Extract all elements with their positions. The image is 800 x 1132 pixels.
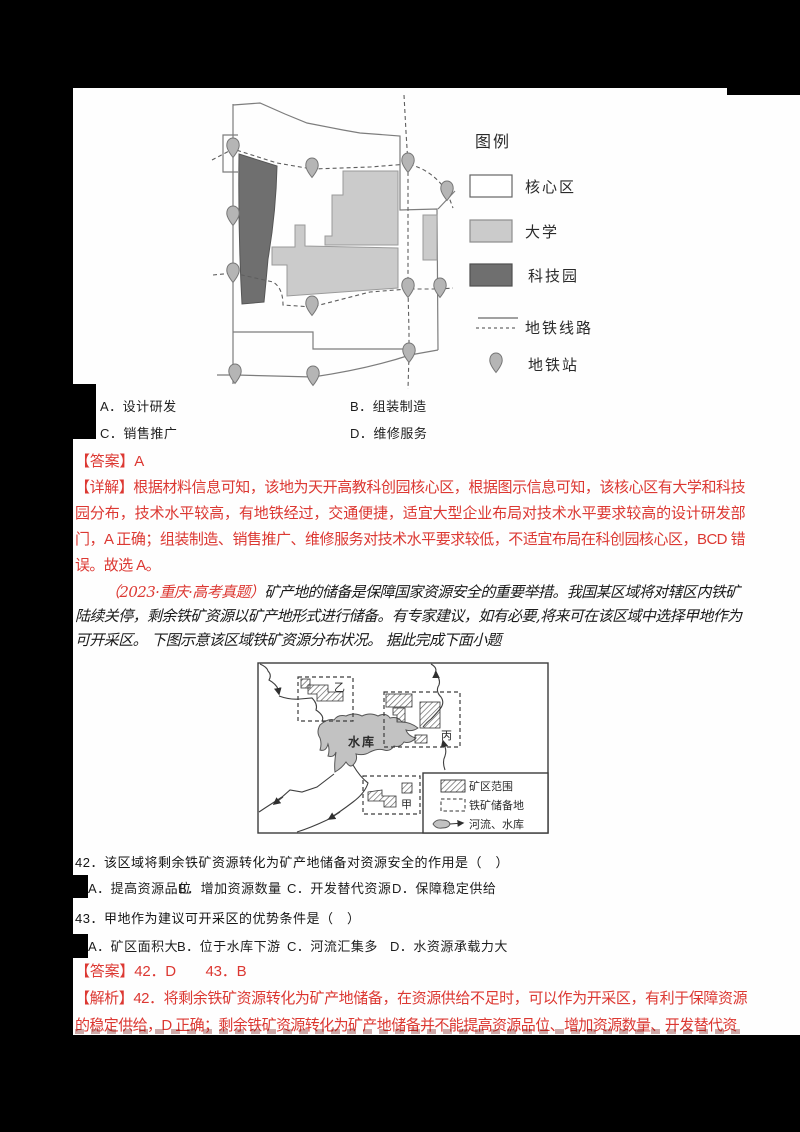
q41-options-row1: A．设计研发 B．组装制造 [73,396,743,416]
q42-option-b: B．增加资源数量 [178,878,282,897]
legend-core-label: 核心区 [525,178,576,196]
ore-reserve-map: 水库 乙 丙 甲 矿区范围 铁矿储备地 河流、水库 [250,658,555,838]
university-swatch [470,220,512,242]
legend-subway-line-label: 地铁线路 [525,319,593,337]
q43-text: 43．甲地作为建议可开采区的优势条件是（ ） [75,908,360,927]
university-area-north [325,171,398,245]
q42-43-analysis: 【解析】42．将剩余铁矿资源转化为矿产地储备，在资源供给不足时，可以作为开采区，… [75,985,747,1035]
q41-option-b: B．组装制造 [350,396,427,415]
redaction-bar-q43 [73,934,88,958]
campus-map: 图例 核心区 大学 科技园 地铁线路 地铁站 [200,92,640,392]
q42-text: 42．该区域将剩余铁矿资源转化为矿产地储备对资源安全的作用是（ ） [75,852,509,871]
legend-station-icon [490,353,502,373]
map2-legend: 矿区范围 铁矿储备地 河流、水库 [423,773,548,833]
q42-options-row: A．提高资源品位 B．增加资源数量 C．开发替代资源 D．保障稳定供给 [73,878,753,898]
q41-answer: 【答案】A [75,450,144,471]
legend-mining-label: 矿区范围 [469,779,513,793]
q42-option-c: C．开发替代资源 [287,878,391,897]
area-yi-label: 乙 [334,681,345,694]
mine-bing-4 [415,735,427,743]
legend-techpark-label: 科技园 [528,267,579,285]
techpark-swatch [470,264,512,286]
q43-option-b: B．位于水库下游 [177,936,281,955]
mine-bing-1 [386,694,412,707]
passage-paragraph: （2023·重庆·高考真题）矿产地的储备是保障国家资源安全的重要举措。我国某区域… [75,580,745,652]
redaction-bar-q42 [73,875,88,898]
legend-river-label: 河流、水库 [469,817,524,831]
q43-option-d: D．水资源承载力大 [390,936,508,955]
q41-option-c: C．销售推广 [100,423,177,442]
passage-source: （2023·重庆·高考真题） [105,583,264,601]
legend-reserve-label: 铁矿储备地 [469,798,524,812]
document-page: 图例 核心区 大学 科技园 地铁线路 地铁站 A．设计研发 B．组装制造 C．销… [73,88,800,1035]
q41-explanation: 【详解】根据材料信息可知，该地为天开高教科创园核心区，根据图示信息可知，该核心区… [75,475,745,579]
map1-legend: 图例 核心区 大学 科技园 地铁线路 地铁站 [470,132,593,374]
core-area-swatch [470,175,512,197]
q43-option-a: A．矿区面积大 [88,936,178,955]
legend-river-blob-icon [433,820,450,828]
reservoir-label: 水库 [348,734,376,749]
q41-options-row2: C．销售推广 D．维修服务 [73,423,743,443]
university-area-east [423,215,437,260]
mine-jia-1 [402,783,412,793]
mine-bing-3 [420,702,440,728]
q42-option-d: D．保障稳定供给 [392,878,496,897]
cut-off-text-strip [75,1029,745,1034]
q43-options-row: A．矿区面积大 B．位于水库下游 C．河流汇集多 D．水资源承载力大 [73,936,753,956]
q43-option-c: C．河流汇集多 [287,936,378,955]
area-jia-label: 甲 [401,798,412,811]
area-bing-label: 丙 [441,729,452,742]
q41-option-d: D．维修服务 [350,423,427,442]
legend-title: 图例 [475,132,511,151]
boundary-inner-step [233,332,410,349]
legend-subway-station-label: 地铁站 [528,356,579,374]
q42-option-a: A．提高资源品位 [88,878,192,897]
photo-crop-notch [727,88,800,95]
redaction-bar-q41 [73,384,96,439]
q42-43-answer: 【答案】42．D 43．B [75,960,246,981]
q41-option-a: A．设计研发 [100,396,177,415]
legend-mining-swatch [441,780,465,792]
screenshot-root: { "colors": { "accent_red": "#dc3832", "… [0,0,800,1132]
legend-university-label: 大学 [525,223,559,241]
